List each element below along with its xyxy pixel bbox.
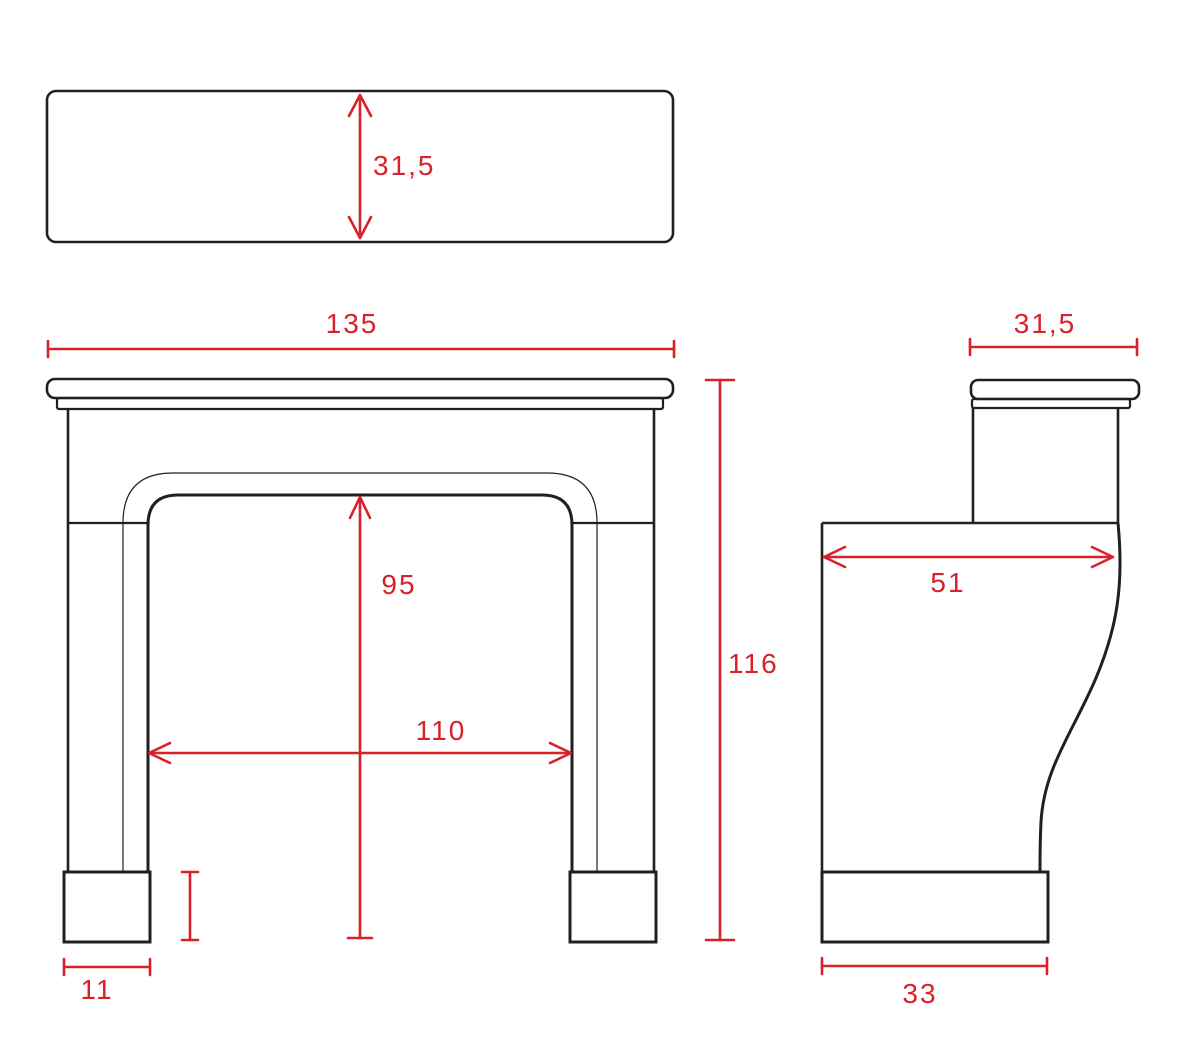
dim-110-label: 110 xyxy=(416,715,467,746)
dim-side-body-depth: 51 xyxy=(824,547,1113,598)
side-ogee-back-curve xyxy=(1040,523,1120,872)
dim-33-label: 33 xyxy=(902,978,937,1009)
dim-side-shelf-depth: 31,5 xyxy=(970,308,1137,355)
dim-front-overall-height: 116 xyxy=(706,380,779,940)
side-shelf xyxy=(971,380,1139,399)
front-left-plinth xyxy=(64,872,150,942)
front-shelf-moulding-strip xyxy=(57,398,663,409)
dim-135-label: 135 xyxy=(326,308,379,339)
dim-11-label: 11 xyxy=(80,974,113,1005)
dim-top-depth-label: 31,5 xyxy=(373,150,436,181)
dim-front-opening-height: 95 xyxy=(348,497,417,938)
drawing-canvas: 31,5 135 116 95 xyxy=(0,0,1200,1050)
dim-side-plinth-depth: 33 xyxy=(822,958,1047,1009)
mantel-side-view xyxy=(822,380,1139,942)
dim-front-plinth-width: 11 xyxy=(64,959,150,1005)
mantel-technical-drawing: 31,5 135 116 95 xyxy=(0,0,1200,1050)
front-right-plinth xyxy=(570,872,656,942)
side-shelf-moulding-strip xyxy=(972,399,1130,408)
side-upper-body-edges xyxy=(973,408,1118,523)
front-shelf xyxy=(47,379,673,398)
dim-51-label: 51 xyxy=(930,567,965,598)
side-plinth xyxy=(822,872,1048,942)
dim-front-plinth-height-mark xyxy=(182,872,198,940)
dim-95-label: 95 xyxy=(381,569,416,600)
dim-front-overall-width: 135 xyxy=(48,308,674,357)
dim-side-315-label: 31,5 xyxy=(1014,308,1077,339)
dim-116-label: 116 xyxy=(728,648,779,679)
